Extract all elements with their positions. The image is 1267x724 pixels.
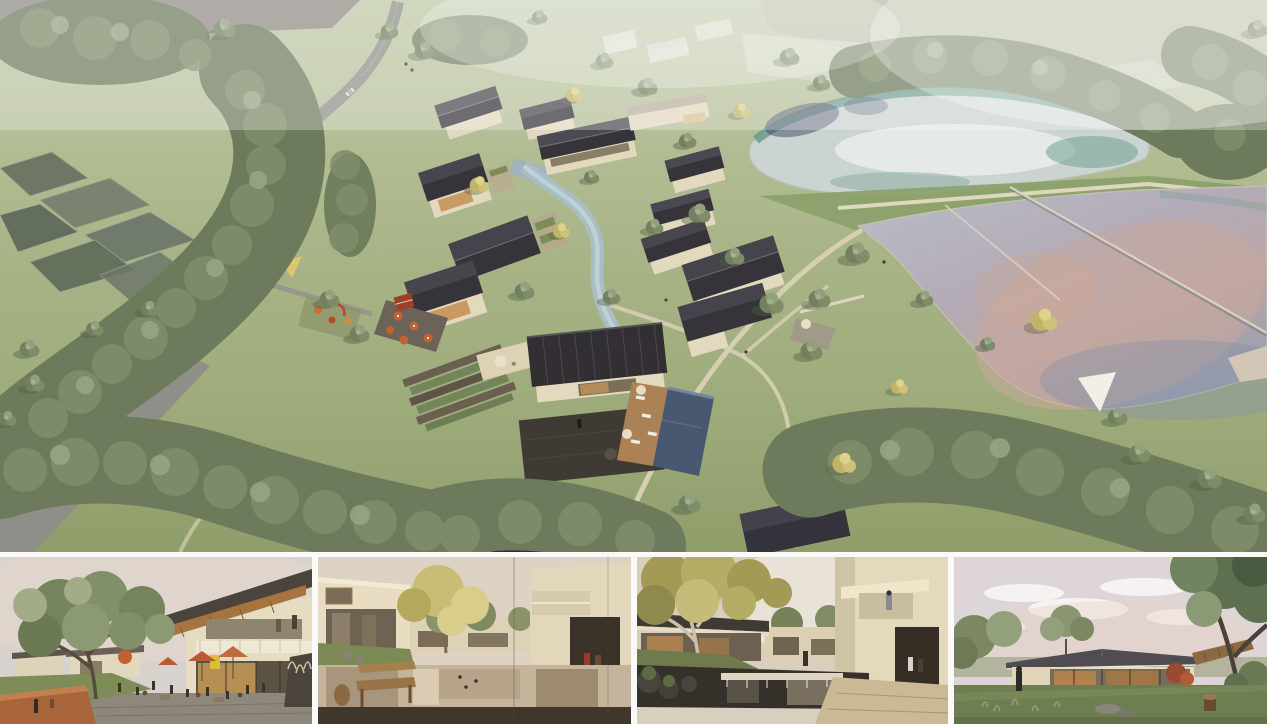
figure	[908, 657, 913, 671]
figure	[918, 659, 923, 672]
thumbnail-waterfall-pond-view	[637, 557, 948, 724]
thumbnail-plaza-image	[0, 557, 312, 724]
red-shrub	[1180, 672, 1194, 686]
figure	[803, 651, 808, 666]
shop-sign	[210, 655, 220, 669]
aerial-site-rendering	[0, 0, 1267, 552]
thumbnail-reflecting-pond-view	[318, 557, 631, 724]
aerial-site-rendering-image	[0, 0, 1267, 552]
stump-stool	[334, 684, 350, 706]
foreground-deck	[318, 707, 631, 724]
thumbnail-waterfall-pond-image	[637, 557, 948, 724]
thumbnail-plaza-view	[0, 557, 312, 724]
stone-walkway	[815, 677, 948, 724]
balcony-figure	[886, 595, 892, 610]
haze	[0, 0, 1267, 130]
thumbnail-reflecting-pond-image	[318, 557, 631, 724]
thumbnail-lawn-pavilion-image	[954, 557, 1267, 724]
swimming-pool	[617, 382, 714, 476]
thumbnail-lawn-pavilion-view	[954, 557, 1267, 724]
presentation-board	[0, 0, 1267, 724]
standing-figure	[1016, 671, 1022, 691]
